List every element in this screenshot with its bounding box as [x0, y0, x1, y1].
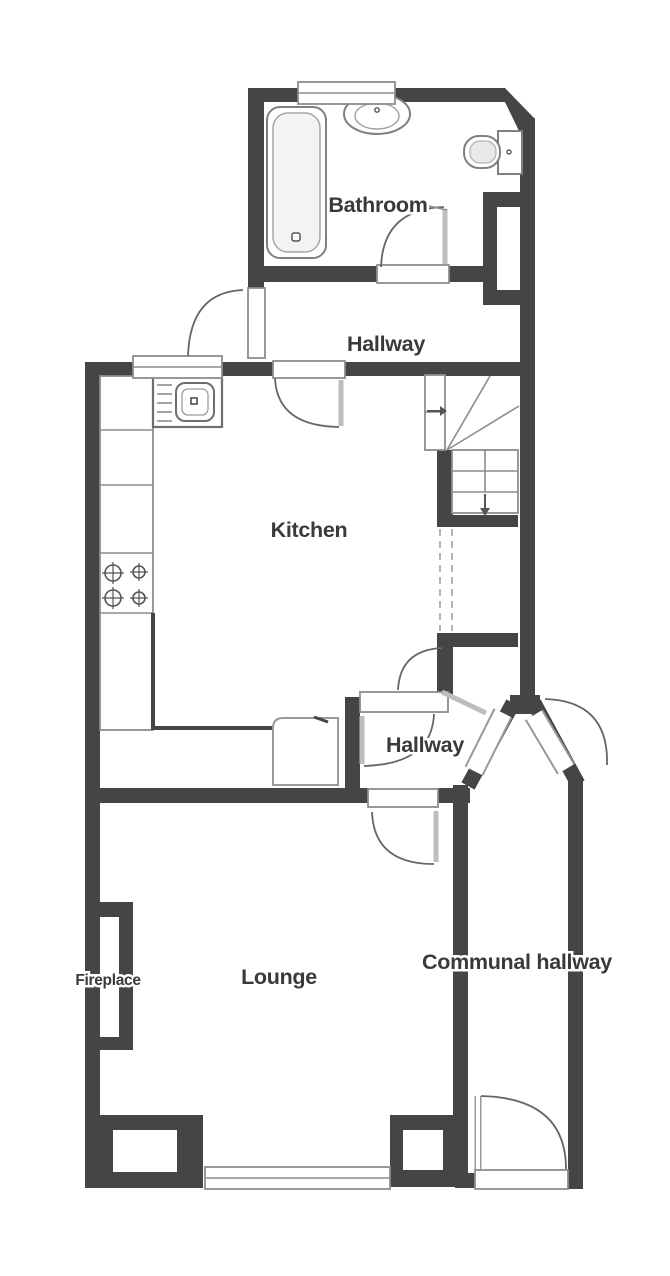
- communal-right-wall: [568, 777, 583, 1189]
- communal-entrance-door-icon: [534, 715, 566, 769]
- bathroom-bottom-wall-right: [449, 266, 483, 282]
- kitchen-fixtures: [100, 376, 338, 785]
- communal-hallway-label: Communal hallway: [422, 950, 612, 974]
- toilet-icon: [464, 131, 522, 174]
- bathroom-window-icon: [298, 82, 395, 104]
- flat-entrance-door-icon: [474, 713, 503, 771]
- floorplan-page: { "plan": { "type": "floorplan", "rooms"…: [0, 0, 670, 1276]
- floorplan-image: Bathroom Hallway Kitchen Hallway Lounge …: [0, 0, 670, 1276]
- hallway-upper-label: Hallway: [347, 332, 425, 356]
- front-door-opening: [475, 1170, 568, 1189]
- bottom-wall-mid: [455, 1173, 475, 1188]
- stair-lobby-top-wall: [437, 633, 518, 647]
- kitchen-window-icon: [133, 356, 222, 378]
- kitchen-door-opening: [273, 361, 345, 378]
- walls: [85, 88, 583, 1189]
- kitchen-lounge-wall: [85, 788, 368, 803]
- bath-tub-icon: [267, 107, 326, 258]
- chimney-bottom: [100, 1037, 133, 1050]
- kitchen-partition-edge: [153, 613, 273, 728]
- bathroom-left-wall: [248, 88, 264, 288]
- lounge-door-arc: [372, 812, 434, 864]
- niche-bottom-wall: [483, 290, 535, 305]
- kitchen-top-wall-right: [345, 362, 535, 376]
- hallway-glazed-panel: [360, 692, 448, 712]
- winder-tread: [447, 406, 519, 450]
- bay-window-icon: [205, 1167, 390, 1189]
- front-door-arc: [481, 1096, 566, 1169]
- niche-recess: [497, 207, 520, 290]
- bathroom-door-opening: [377, 265, 449, 283]
- hallway-west-door-arc: [188, 290, 243, 356]
- lounge-door-opening: [368, 789, 438, 807]
- kitchen-sink-icon: [153, 376, 222, 427]
- left-outer-wall: [85, 362, 100, 1188]
- niche-left-wall: [483, 192, 497, 305]
- kitchen-label: Kitchen: [271, 518, 348, 542]
- hallway-lower-label: Hallway: [386, 733, 464, 757]
- kitchen-top-wall-mid: [222, 362, 273, 376]
- fireplace-label: Fireplace: [75, 972, 141, 989]
- bathroom-bottom-wall-left: [264, 266, 377, 282]
- under-stair-wall: [437, 515, 518, 527]
- bay-pillar-right-hollow: [403, 1130, 443, 1170]
- flat-entrance-door-arc: [398, 648, 442, 690]
- winder-tread: [447, 376, 490, 450]
- kitchen-door-arc: [275, 378, 339, 427]
- lounge-label: Lounge: [241, 965, 317, 989]
- bathroom-label: Bathroom: [328, 193, 427, 217]
- communal-left-wall: [453, 785, 468, 1183]
- bay-pillar-left-hollow: [113, 1130, 177, 1172]
- hallway-lower-left-wall: [345, 697, 360, 803]
- kitchen-unit-icon: [273, 718, 338, 785]
- hallway-west-door-panel: [248, 288, 265, 358]
- stair-side-wall: [437, 450, 453, 515]
